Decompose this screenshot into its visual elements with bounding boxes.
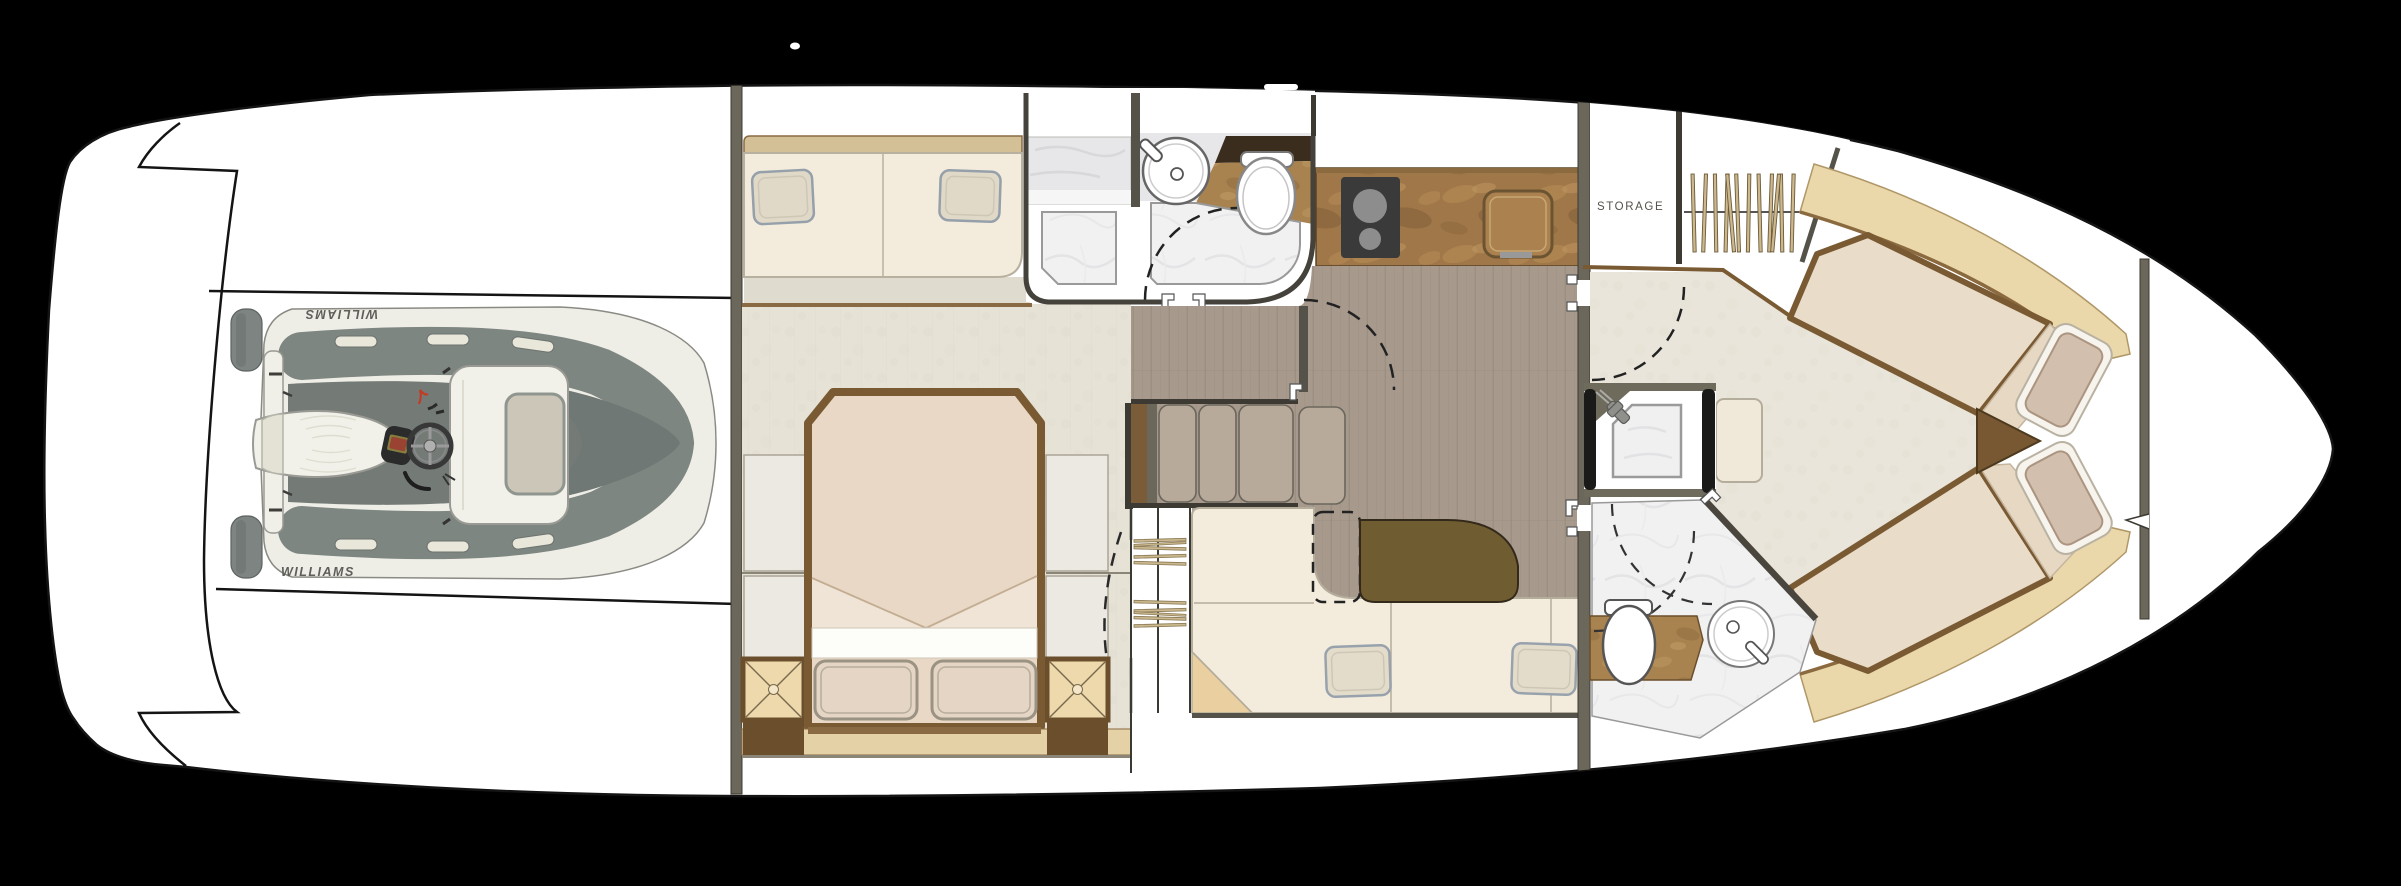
- svg-text:WILLIAMS: WILLIAMS: [304, 307, 378, 321]
- svg-text:STORAGE: STORAGE: [1597, 201, 1664, 213]
- svg-text:WILLIAMS: WILLIAMS: [281, 565, 355, 579]
